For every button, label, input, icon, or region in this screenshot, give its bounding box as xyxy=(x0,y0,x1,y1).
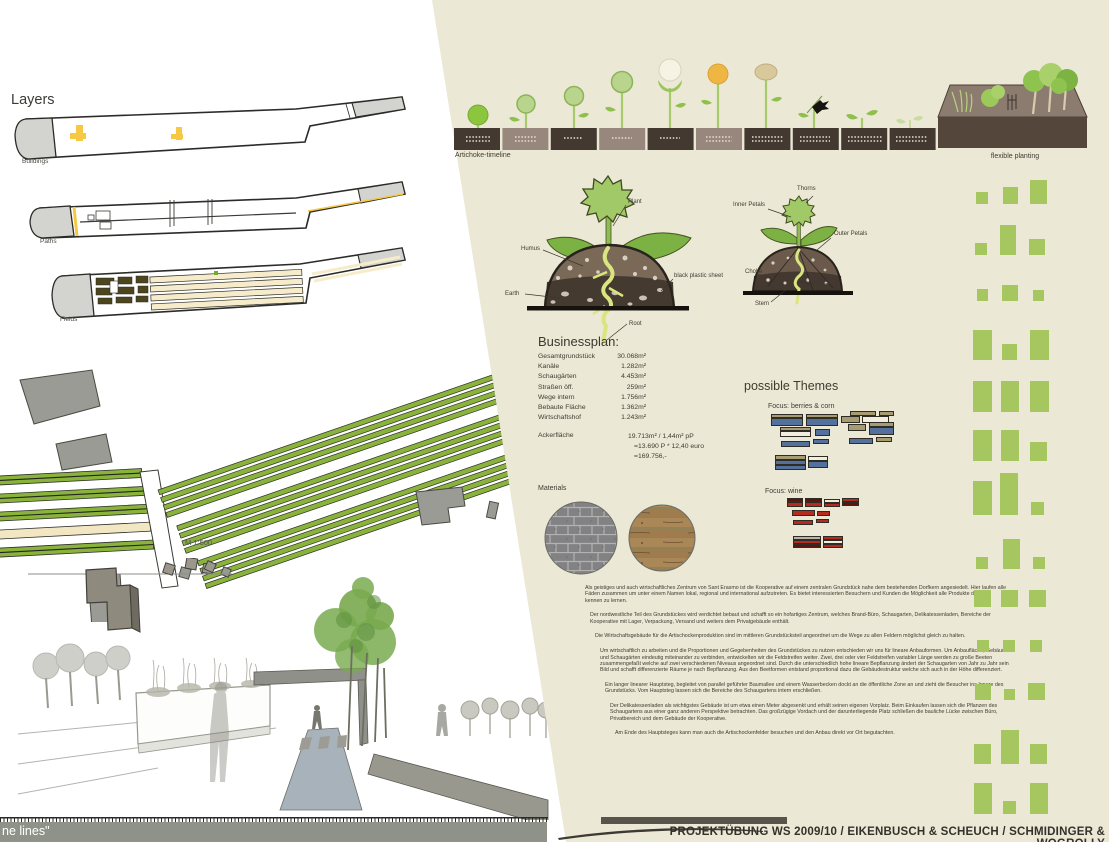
field-pattern-block xyxy=(1004,689,1015,700)
footer-left-text: ne lines" xyxy=(2,824,50,838)
field-pattern-column xyxy=(0,0,1109,842)
field-pattern-block xyxy=(1003,640,1015,652)
poster-canvas: Layers xyxy=(0,0,1109,842)
field-pattern-block xyxy=(1003,801,1016,814)
field-pattern-block xyxy=(973,381,992,412)
field-pattern-block xyxy=(1000,473,1018,515)
field-pattern-block xyxy=(1002,344,1017,360)
field-pattern-block xyxy=(973,430,992,461)
field-pattern-block xyxy=(974,744,991,764)
field-pattern-block xyxy=(1030,783,1048,814)
field-pattern-block xyxy=(1030,640,1042,652)
field-pattern-block xyxy=(1030,442,1047,461)
field-pattern-block xyxy=(975,243,987,255)
field-pattern-block xyxy=(1030,330,1049,360)
field-pattern-block xyxy=(1003,187,1018,204)
field-pattern-block xyxy=(1001,430,1019,461)
field-pattern-block xyxy=(974,783,992,814)
field-pattern-block xyxy=(1029,239,1045,255)
field-pattern-block xyxy=(974,590,991,607)
footer-title-bar: ne lines" xyxy=(0,822,547,842)
field-pattern-block xyxy=(1002,285,1018,301)
field-pattern-block xyxy=(1029,590,1046,607)
field-pattern-block xyxy=(977,289,988,301)
field-pattern-block xyxy=(1030,180,1047,204)
field-pattern-block xyxy=(1001,730,1019,764)
field-pattern-block xyxy=(1003,539,1020,569)
field-pattern-block xyxy=(1001,590,1018,607)
field-pattern-block xyxy=(976,192,988,204)
field-pattern-block xyxy=(1001,381,1019,412)
field-pattern-block xyxy=(973,481,992,515)
field-pattern-block xyxy=(976,557,988,569)
field-pattern-block xyxy=(1033,290,1044,301)
footer-credits: PROJEKTÜBUNG WS 2009/10 / EIKENBUSCH & S… xyxy=(600,826,1105,842)
field-pattern-block xyxy=(977,640,989,652)
field-pattern-block xyxy=(1033,557,1045,569)
field-pattern-block xyxy=(1030,744,1047,764)
field-pattern-block xyxy=(1031,502,1044,515)
field-pattern-block xyxy=(1028,683,1045,700)
footer-dark-slab xyxy=(601,817,787,824)
field-pattern-block xyxy=(973,330,992,360)
field-pattern-block xyxy=(1030,381,1049,412)
field-pattern-block xyxy=(975,684,991,700)
field-pattern-block xyxy=(1000,225,1016,255)
